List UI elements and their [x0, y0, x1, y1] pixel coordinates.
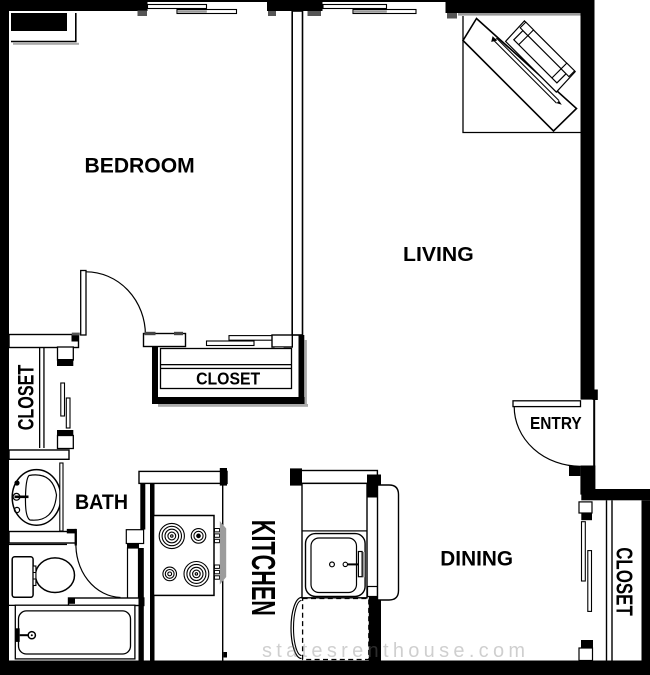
svg-text:CLOSET: CLOSET	[14, 364, 39, 430]
svg-text:BATH: BATH	[75, 491, 128, 514]
svg-text:BEDROOM: BEDROOM	[85, 155, 195, 178]
svg-text:CLOSET: CLOSET	[196, 369, 261, 389]
svg-text:statesrenthouse.com: statesrenthouse.com	[262, 640, 529, 662]
svg-text:CLOSET: CLOSET	[611, 547, 637, 616]
svg-text:KITCHEN: KITCHEN	[245, 520, 282, 616]
svg-text:LIVING: LIVING	[403, 243, 474, 266]
svg-text:DINING: DINING	[440, 547, 513, 570]
svg-text:ENTRY: ENTRY	[530, 413, 582, 433]
